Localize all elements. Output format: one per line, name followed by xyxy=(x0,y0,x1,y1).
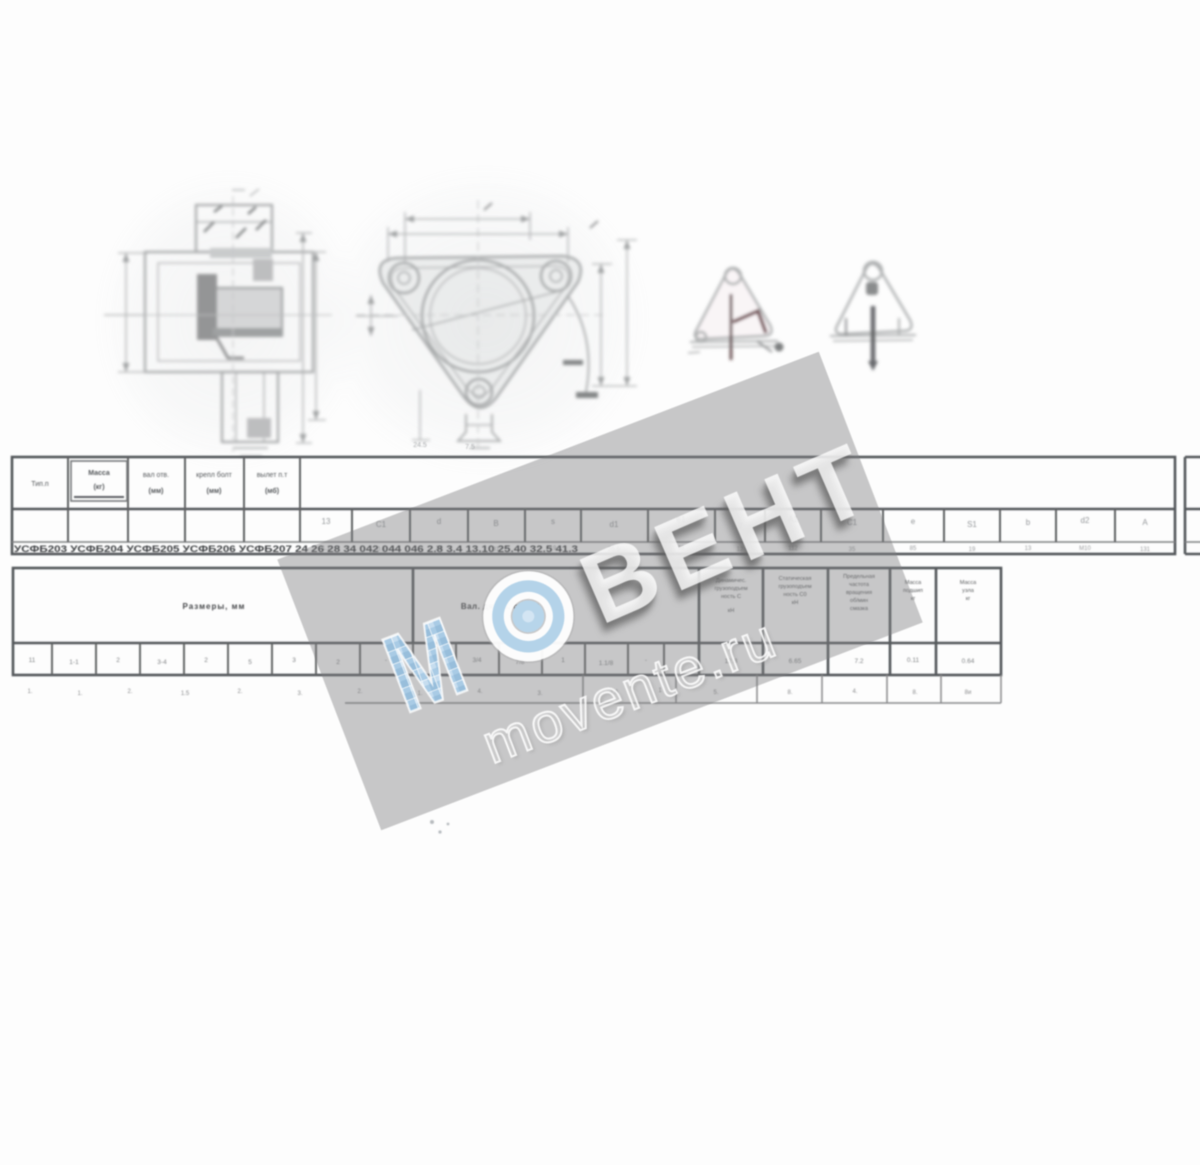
svg-text:(мб): (мб) xyxy=(265,487,279,495)
svg-text:Масса: Масса xyxy=(960,580,977,586)
svg-text:4.: 4. xyxy=(852,689,857,695)
svg-text:(кг): (кг) xyxy=(93,484,104,491)
svg-text:S1: S1 xyxy=(967,520,977,529)
svg-text:0.11: 0.11 xyxy=(907,657,920,664)
svg-text:3-4: 3-4 xyxy=(157,659,167,666)
svg-text:(мм): (мм) xyxy=(148,488,163,495)
svg-text:(мм): (мм) xyxy=(206,488,221,495)
svg-text:13: 13 xyxy=(1025,546,1032,552)
svg-text:Тип.п: Тип.п xyxy=(31,481,49,488)
svg-text:24.5: 24.5 xyxy=(413,442,427,449)
svg-text:b: b xyxy=(1026,518,1031,527)
svg-text:11: 11 xyxy=(29,657,36,664)
svg-text:Размеры, мм: Размеры, мм xyxy=(183,602,246,611)
svg-text:e: e xyxy=(911,517,916,526)
svg-text:вылет п.т: вылет п.т xyxy=(257,472,288,479)
svg-text:0.64: 0.64 xyxy=(962,658,975,665)
svg-text:1-1: 1-1 xyxy=(69,659,79,666)
svg-text:131: 131 xyxy=(1140,547,1151,553)
svg-text:крепл болт: крепл болт xyxy=(196,471,233,479)
svg-text:3.: 3. xyxy=(297,691,302,697)
svg-text:1.5: 1.5 xyxy=(181,691,190,697)
svg-text:1.: 1. xyxy=(77,691,82,697)
svg-text:d2: d2 xyxy=(1081,516,1090,525)
svg-text:кг: кг xyxy=(966,596,971,602)
svg-text:8.: 8. xyxy=(787,690,792,696)
svg-text:M10: M10 xyxy=(1079,546,1091,552)
svg-text:13: 13 xyxy=(322,517,331,526)
svg-text:2.: 2. xyxy=(237,689,242,695)
svg-text:7.5: 7.5 xyxy=(465,444,475,451)
svg-text:7.2: 7.2 xyxy=(854,658,863,665)
svg-text:A: A xyxy=(1142,518,1148,527)
svg-text:2: 2 xyxy=(204,657,208,664)
svg-text:1.: 1. xyxy=(27,689,32,695)
svg-text:8и: 8и xyxy=(965,690,972,696)
svg-text:8.: 8. xyxy=(912,690,917,696)
svg-text:5: 5 xyxy=(248,659,252,666)
svg-text:узла: узла xyxy=(962,588,975,594)
svg-text:2: 2 xyxy=(116,657,120,664)
svg-text:85: 85 xyxy=(910,546,917,552)
svg-text:2.: 2. xyxy=(127,689,132,695)
svg-text:М: М xyxy=(368,594,481,737)
svg-text:Масса: Масса xyxy=(88,470,110,477)
svg-text:19: 19 xyxy=(969,547,976,553)
svg-text:3: 3 xyxy=(292,657,296,664)
svg-text:вал отв.: вал отв. xyxy=(143,472,169,479)
